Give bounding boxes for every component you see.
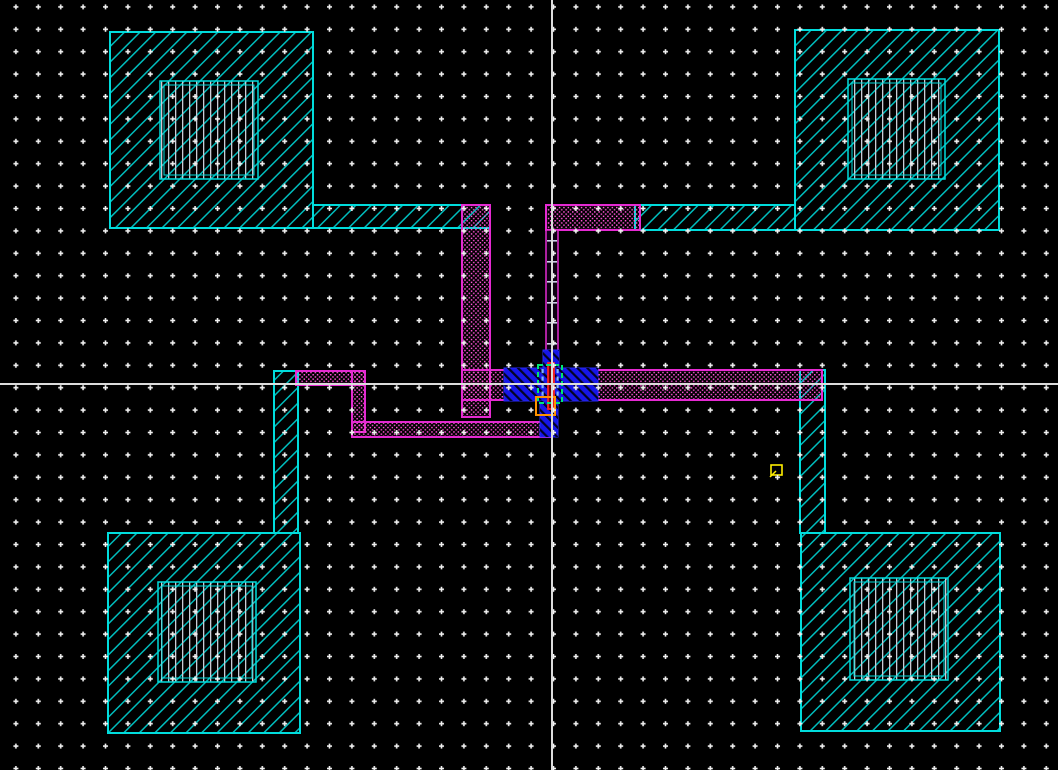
layout-canvas[interactable] [0,0,1058,770]
layout-editor-viewport[interactable] [0,0,1058,770]
crosshair-horizontal-line [0,383,1058,385]
